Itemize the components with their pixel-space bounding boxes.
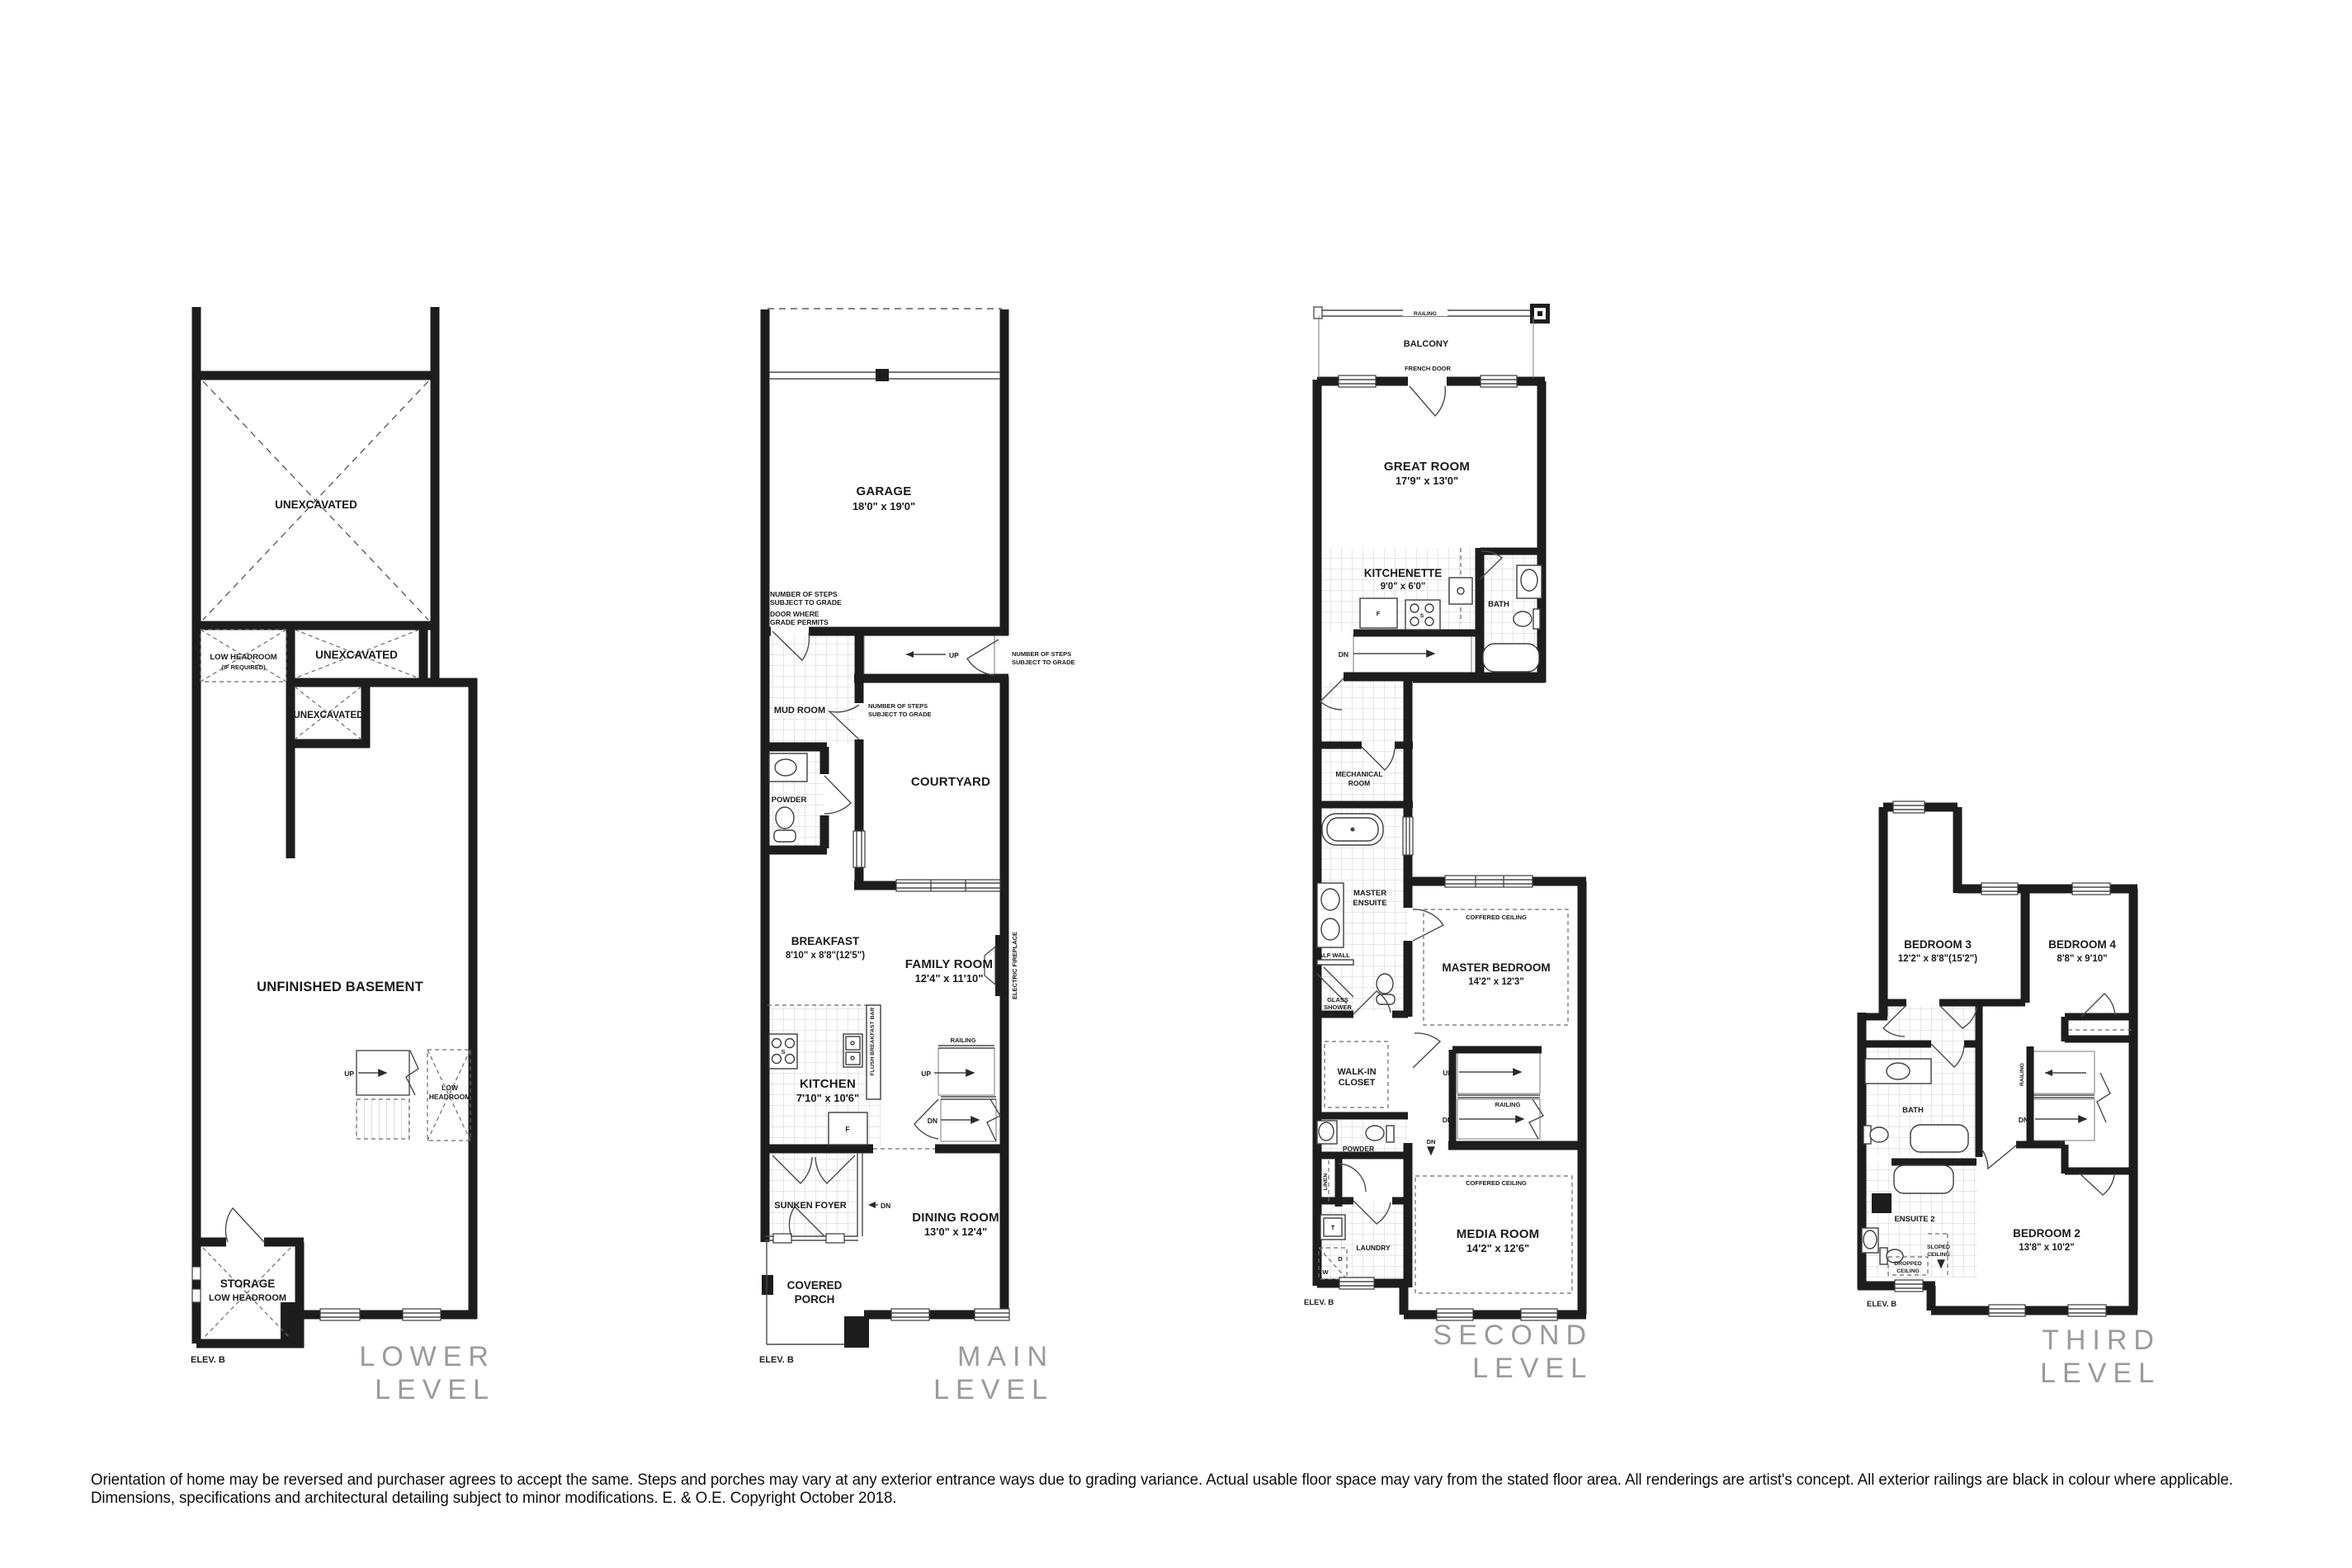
third-title-line2: LEVEL (1946, 1357, 2161, 1390)
label-low-stairs-1: LOW (442, 1084, 459, 1092)
label-sunken-foyer: SUNKEN FOYER (774, 1201, 846, 1211)
label-garage: GARAGE (856, 484, 911, 498)
label-flush-breakfast-bar: FLUSH BREAKFAST BAR (870, 1008, 876, 1076)
label-powder-second: POWDER (1343, 1145, 1374, 1153)
label-bath2: BATH (1488, 600, 1509, 609)
lower-level-details (192, 381, 470, 1339)
label-kitchenette-dim: 9'0" x 6'0" (1381, 582, 1426, 592)
label-media-dim: 14'2" x 12'6" (1466, 1242, 1529, 1254)
label-garage-dim: 18'0" x 19'0" (852, 500, 915, 512)
third-level-title: THIRD LEVEL (1946, 1324, 2161, 1390)
label-kitchen-dim: 7'10" x 10'6" (796, 1092, 859, 1104)
label-storage: STORAGE (220, 1278, 276, 1290)
label-door1a: DOOR WHERE (770, 610, 819, 618)
label-steps1b: SUBJECT TO GRADE (770, 598, 842, 607)
label-elev-lower: ELEV. B (191, 1355, 225, 1365)
main-level-title: MAIN LEVEL (839, 1340, 1054, 1406)
label-elev-third: ELEV. B (1867, 1300, 1896, 1309)
label-dining-dim: 13'0" x 12'4" (924, 1226, 987, 1238)
label-halfwall: HALF WALL (1314, 952, 1350, 959)
label-glass-2: SHOWER (1324, 1004, 1352, 1011)
label-master-ensuite-1: MASTER (1353, 889, 1386, 898)
label-steps1a: NUMBER OF STEPS (770, 590, 838, 598)
label-mud-room: MUD ROOM (774, 706, 825, 716)
label-bedroom3: BEDROOM 3 (1904, 938, 1972, 951)
label-railing-balcony: RAILING (1414, 311, 1437, 317)
label-dn-second: DN (1443, 1116, 1452, 1124)
label-electric-fireplace: ELECTRIC FIREPLACE (1011, 932, 1018, 999)
label-powder-main: POWDER (772, 796, 807, 805)
label-sloped-1: SLOPED (1927, 1244, 1950, 1250)
label-french-door: FRENCH DOOR (1405, 365, 1451, 372)
label-coffered-master: COFFERED CEILING (1466, 914, 1527, 921)
label-low-headroom-1: LOW HEADROOM (210, 653, 276, 662)
lower-level-walls (192, 307, 477, 1348)
label-stove-s: S (781, 1048, 785, 1056)
label-breakfast-dim: 8'10" x 8'8"(12'5") (786, 951, 865, 961)
label-laundry: LAUNDRY (1356, 1244, 1391, 1252)
label-laundry-t: T (1331, 1224, 1335, 1231)
label-low-headroom-2: (IF REQUIRED) (221, 664, 266, 671)
label-laundry-d: D (1338, 1255, 1343, 1263)
label-up-second: UP (1443, 1069, 1452, 1077)
label-railing-third: RAILING (2019, 1063, 2025, 1086)
label-walkin-1: WALK-IN (1337, 1067, 1376, 1077)
label-steps2b: SUBJECT TO GRADE (1012, 659, 1075, 666)
label-media-room: MEDIA ROOM (1457, 1227, 1540, 1241)
label-elev-second: ELEV. B (1304, 1298, 1334, 1307)
label-sloped-2: CEILING (1927, 1252, 1950, 1258)
label-unexcavated-wide: UNEXCAVATED (315, 649, 398, 661)
label-steps3b: SUBJECT TO GRADE (868, 711, 932, 718)
third-title-line1: THIRD (1946, 1324, 2161, 1357)
label-master-dim: 14'2" x 12'3" (1468, 977, 1524, 987)
label-railing-main: RAILING (951, 1037, 976, 1044)
main-title-line1: MAIN (839, 1340, 1054, 1373)
label-dn-kitchenette: DN (1339, 650, 1348, 659)
label-great-room: GREAT ROOM (1384, 460, 1470, 474)
main-title-line2: LEVEL (839, 1373, 1054, 1406)
label-laundry-w: W (1322, 1268, 1329, 1276)
label-s2: S (1420, 613, 1424, 619)
label-glass-1: GLASS (1327, 996, 1348, 1004)
label-bedroom2-dim: 13'8" x 10'2" (2019, 1243, 2075, 1253)
label-dn-hall: DN (1427, 1138, 1436, 1145)
label-f2: F (1377, 610, 1381, 617)
label-bedroom3-dim: 12'2" x 8'8"(15'2") (1898, 954, 1977, 964)
main-level-plan: GARAGE 18'0" x 19'0" NUMBER OF STEPS SUB… (759, 309, 1075, 1365)
label-bedroom4: BEDROOM 4 (2048, 938, 2116, 951)
label-dn-third: DN (2019, 1116, 2028, 1124)
label-steps3a: NUMBER OF STEPS (868, 702, 928, 710)
lower-level-surfaces (357, 1051, 409, 1139)
label-storage-low-headroom: LOW HEADROOM (209, 1293, 286, 1303)
label-bedroom2: BEDROOM 2 (2013, 1227, 2080, 1240)
lower-title-line2: LEVEL (281, 1373, 495, 1406)
label-fridge-f: F (845, 1125, 849, 1133)
label-covered-porch-2: PORCH (795, 1293, 835, 1306)
floorplan-sheet: UNEXCAVATED LOW HEADROOM (IF REQUIRED) U… (0, 0, 2352, 1568)
third-level-plan: BEDROOM 3 12'2" x 8'8"(15'2") BEDROOM 4 … (1858, 801, 2137, 1316)
label-steps2a: NUMBER OF STEPS (1012, 650, 1071, 658)
label-mechanical-2: ROOM (1348, 779, 1370, 787)
lower-level-title: LOWER LEVEL (281, 1340, 495, 1406)
second-level-title: SECOND LEVEL (1378, 1319, 1593, 1385)
label-bedroom4-dim: 8'8" x 9'10" (2057, 954, 2107, 964)
label-dn-foyer: DN (881, 1202, 890, 1210)
label-up-mud-stairs: UP (949, 651, 959, 659)
label-bath3: BATH (1902, 1106, 1924, 1115)
label-kitchen: KITCHEN (800, 1077, 856, 1091)
label-dropped-2: CEILING (1896, 1268, 1920, 1274)
label-dropped-1: DROPPED (1894, 1261, 1922, 1267)
label-breakfast: BREAKFAST (791, 935, 860, 947)
label-ensuite2: ENSUITE 2 (1894, 1215, 1934, 1224)
label-kitchenette: KITCHENETTE (1364, 567, 1443, 579)
label-walkin-2: CLOSET (1339, 1078, 1376, 1088)
lower-title-line1: LOWER (281, 1340, 495, 1373)
label-balcony: BALCONY (1404, 339, 1449, 349)
label-up-main-stairs: UP (921, 1070, 931, 1078)
label-unexcavated-small: UNEXCAVATED (294, 711, 364, 720)
label-linen: LINEN (1323, 1174, 1329, 1190)
label-elev-main: ELEV. B (759, 1355, 794, 1365)
lower-level-plan: UNEXCAVATED LOW HEADROOM (IF REQUIRED) U… (191, 307, 477, 1365)
label-up-basement: UP (344, 1070, 354, 1078)
label-covered-porch-1: COVERED (787, 1279, 843, 1292)
second-title-line1: SECOND (1378, 1319, 1593, 1352)
second-title-line2: LEVEL (1378, 1352, 1593, 1385)
label-dn-main-stairs: DN (928, 1117, 937, 1125)
disclaimer-text: Orientation of home may be reversed and … (91, 1471, 2286, 1508)
label-low-stairs-2: HEADROOM (429, 1093, 471, 1101)
label-family-dim: 12'4" x 11'10" (915, 972, 984, 985)
label-family-room: FAMILY ROOM (905, 957, 993, 971)
label-master-ensuite-2: ENSUITE (1353, 899, 1386, 908)
label-courtyard: COURTYARD (911, 775, 990, 789)
label-unfinished-basement: UNFINISHED BASEMENT (257, 980, 423, 994)
second-level-plan: RAILING BALCONY FRENCH DOOR GREAT ROOM 1… (1304, 304, 1586, 1320)
label-door1b: GRADE PERMITS (770, 618, 829, 626)
label-dining-room: DINING ROOM (912, 1211, 999, 1225)
label-great-dim: 17'9" x 13'0" (1396, 475, 1458, 487)
label-railing-second: RAILING (1495, 1101, 1521, 1108)
label-mechanical-1: MECHANICAL (1335, 770, 1382, 778)
label-unexcavated-big: UNEXCAVATED (275, 498, 357, 511)
label-coffered-media: COFFERED CEILING (1466, 1179, 1527, 1187)
label-master-bedroom: MASTER BEDROOM (1442, 961, 1550, 974)
